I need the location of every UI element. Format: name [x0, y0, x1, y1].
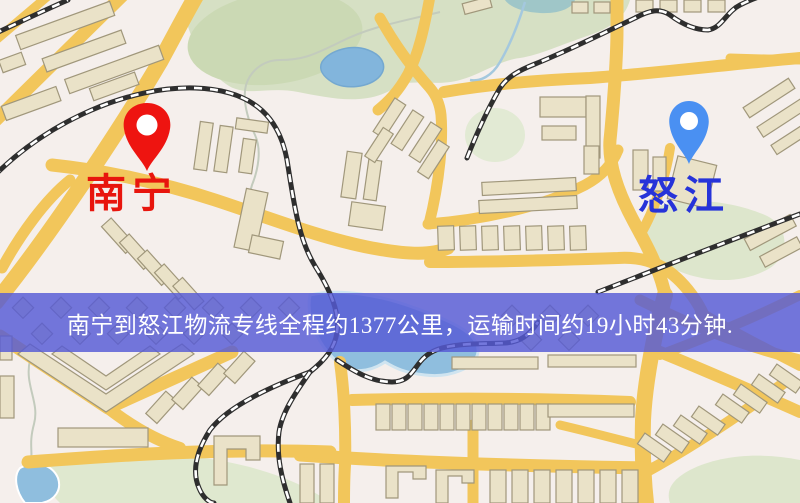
destination-pin-icon[interactable] [661, 98, 717, 168]
origin-label: 南宁 [86, 174, 178, 214]
route-info-banner: 南宁到怒江物流专线全程约1377公里，运输时间约19小时43分钟. [0, 293, 800, 352]
origin-pin-hole [137, 115, 158, 136]
destination-pin-hole [680, 112, 698, 130]
destination-pin-body [669, 101, 709, 164]
origin-pin-icon[interactable] [115, 100, 179, 176]
origin-pin-body [124, 103, 171, 171]
map-view[interactable]: 南宁 怒江 南宁到怒江物流专线全程约1377公里，运输时间约19小时43分钟. [0, 0, 800, 503]
map-canvas [0, 0, 800, 503]
destination-label: 怒江 [638, 176, 730, 216]
route-info-text: 南宁到怒江物流专线全程约1377公里，运输时间约19小时43分钟. [67, 306, 733, 340]
